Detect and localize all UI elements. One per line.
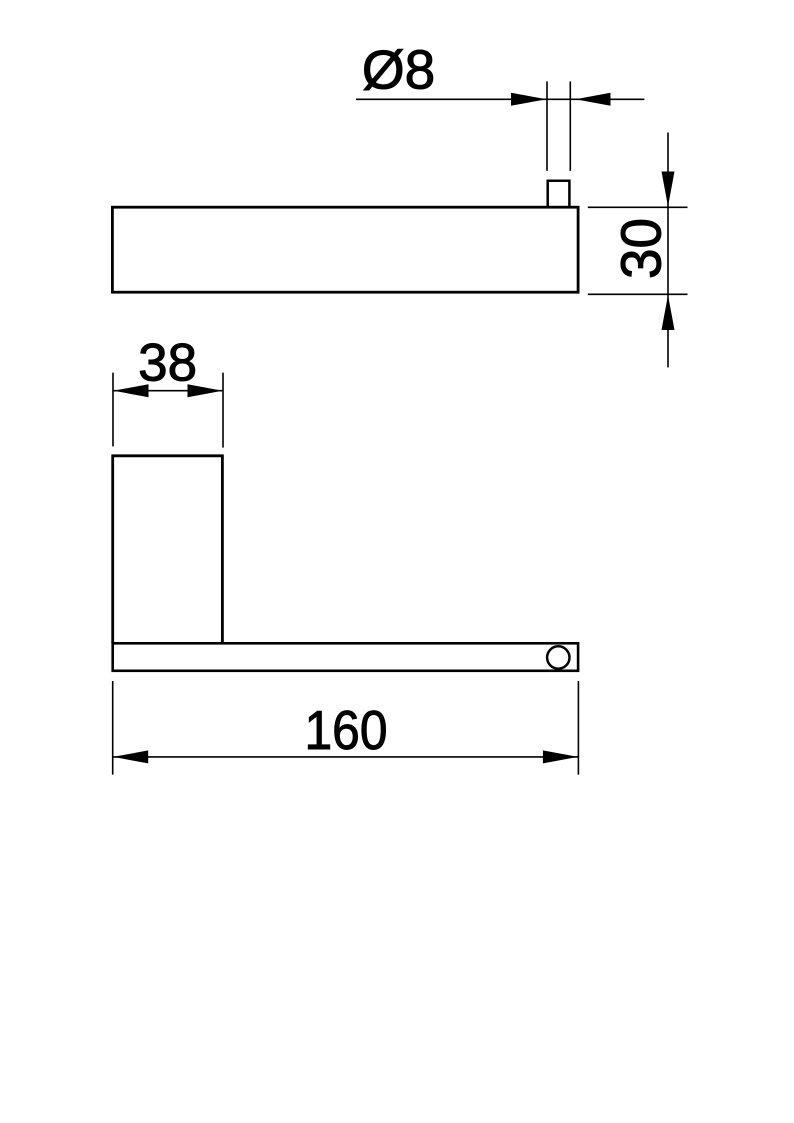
svg-text:38: 38 [138,333,197,392]
svg-text:Ø8: Ø8 [362,39,435,101]
svg-text:160: 160 [305,699,388,761]
svg-text:30: 30 [610,218,674,279]
